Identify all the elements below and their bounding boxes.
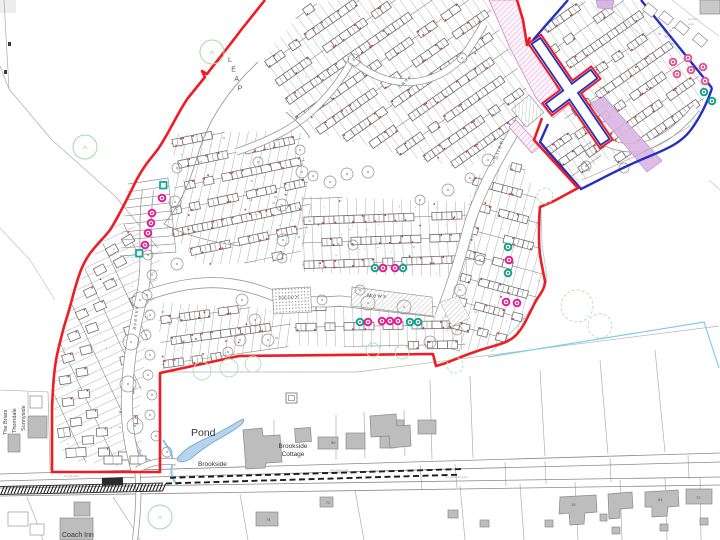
svg-text:19: 19 xyxy=(571,502,576,507)
svg-text:A: A xyxy=(234,76,239,83)
svg-text:xxx xxxxxxx xxxx: xxx xxxxxxx xxxx xyxy=(445,475,468,479)
svg-text:18: 18 xyxy=(249,198,253,202)
svg-text:Coach Inn: Coach Inn xyxy=(62,532,94,539)
svg-text:89: 89 xyxy=(275,336,279,340)
svg-text:xx xxxx: xx xxxx xyxy=(688,17,698,21)
svg-text:72: 72 xyxy=(326,501,330,505)
svg-text:74: 74 xyxy=(266,517,271,522)
svg-text:72: 72 xyxy=(696,495,701,500)
svg-text:44: 44 xyxy=(272,201,276,205)
svg-text:xxx xxxx xxxx: xxx xxxx xxxx xyxy=(330,468,349,472)
svg-text:19: 19 xyxy=(474,310,478,314)
svg-text:52: 52 xyxy=(600,86,604,90)
svg-text:Brookside: Brookside xyxy=(198,461,227,468)
svg-text:45: 45 xyxy=(297,235,301,239)
svg-text:60: 60 xyxy=(182,339,186,343)
svg-text:35: 35 xyxy=(161,310,165,314)
svg-text:65: 65 xyxy=(337,242,341,246)
svg-text:60: 60 xyxy=(571,55,575,59)
svg-text:Cottage: Cottage xyxy=(282,451,305,458)
svg-text:40: 40 xyxy=(167,320,171,324)
svg-text:Sunnyside: Sunnyside xyxy=(21,405,27,431)
svg-text:E: E xyxy=(231,67,236,74)
svg-text:64: 64 xyxy=(658,497,663,502)
svg-text:19: 19 xyxy=(435,121,439,125)
svg-text:xx xxx xxxx: xx xxx xxxx xyxy=(64,474,80,478)
svg-text:99: 99 xyxy=(331,440,336,445)
svg-text:34: 34 xyxy=(222,136,226,140)
svg-text:P: P xyxy=(238,86,243,93)
svg-text:21: 21 xyxy=(118,425,122,429)
svg-text:46: 46 xyxy=(250,179,254,183)
svg-text:47: 47 xyxy=(412,245,416,249)
svg-text:xxxx: xxxx xyxy=(688,22,695,26)
svg-text:Pond: Pond xyxy=(191,427,216,439)
svg-text:Thorndale: Thorndale xyxy=(12,408,18,433)
svg-text:93: 93 xyxy=(308,219,312,223)
svg-text:11: 11 xyxy=(514,96,517,100)
svg-text:The Briars: The Briars xyxy=(3,409,9,435)
svg-text:L: L xyxy=(228,57,232,64)
svg-text:78: 78 xyxy=(199,160,203,164)
svg-text:82: 82 xyxy=(274,195,278,199)
svg-text:51: 51 xyxy=(512,236,516,240)
svg-text:52: 52 xyxy=(658,32,662,36)
svg-text:S q u a r e: S q u a r e xyxy=(279,294,299,300)
svg-text:Brookside: Brookside xyxy=(279,443,308,450)
